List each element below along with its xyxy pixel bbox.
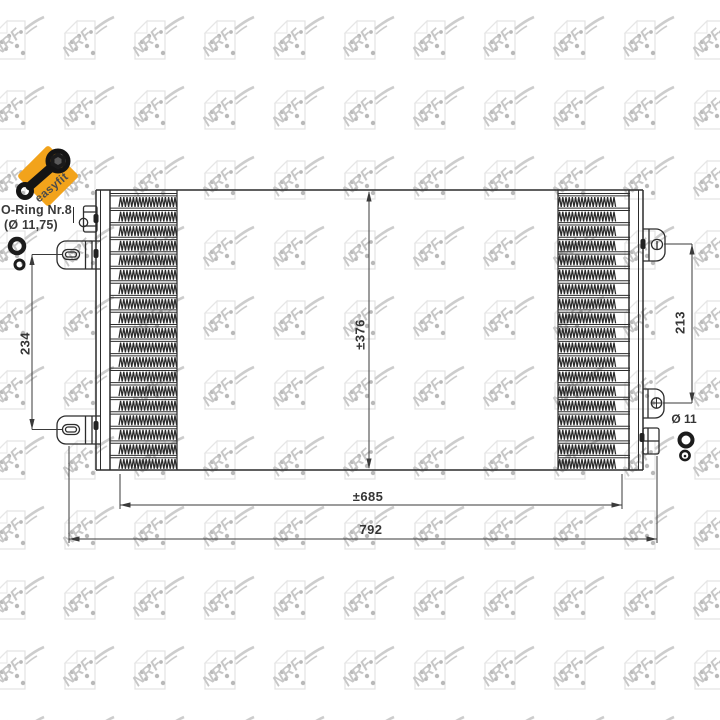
technical-drawing-canvas: NRF (0, 0, 720, 720)
dimension-core-height: ±376 (353, 305, 368, 365)
dimension-overall-width: 792 (341, 522, 401, 537)
mount-bracket-top-left (57, 241, 100, 269)
o-ring-icon-left (10, 239, 24, 269)
fins-left (119, 197, 177, 469)
dimension-right-mount-span: 213 (673, 293, 688, 353)
o-ring-icon-right (680, 434, 693, 461)
oring-size-label: (Ø 11,75) (4, 218, 58, 232)
right-tank (629, 190, 643, 470)
core-tubes (110, 194, 630, 458)
oring-label: O-Ring Nr.8 (1, 203, 72, 217)
easyfit-badge: easyfit (12, 140, 82, 210)
outlet-block-bottom-right (640, 428, 660, 454)
dimension-core-width: ±685 (338, 489, 398, 504)
dimension-left-mount-span: 234 (18, 314, 33, 374)
fins-right (558, 197, 616, 469)
mount-bracket-bottom-left (57, 416, 100, 444)
port-diameter-label: Ø 11 (654, 412, 714, 426)
mount-bracket-top-right (641, 229, 666, 261)
